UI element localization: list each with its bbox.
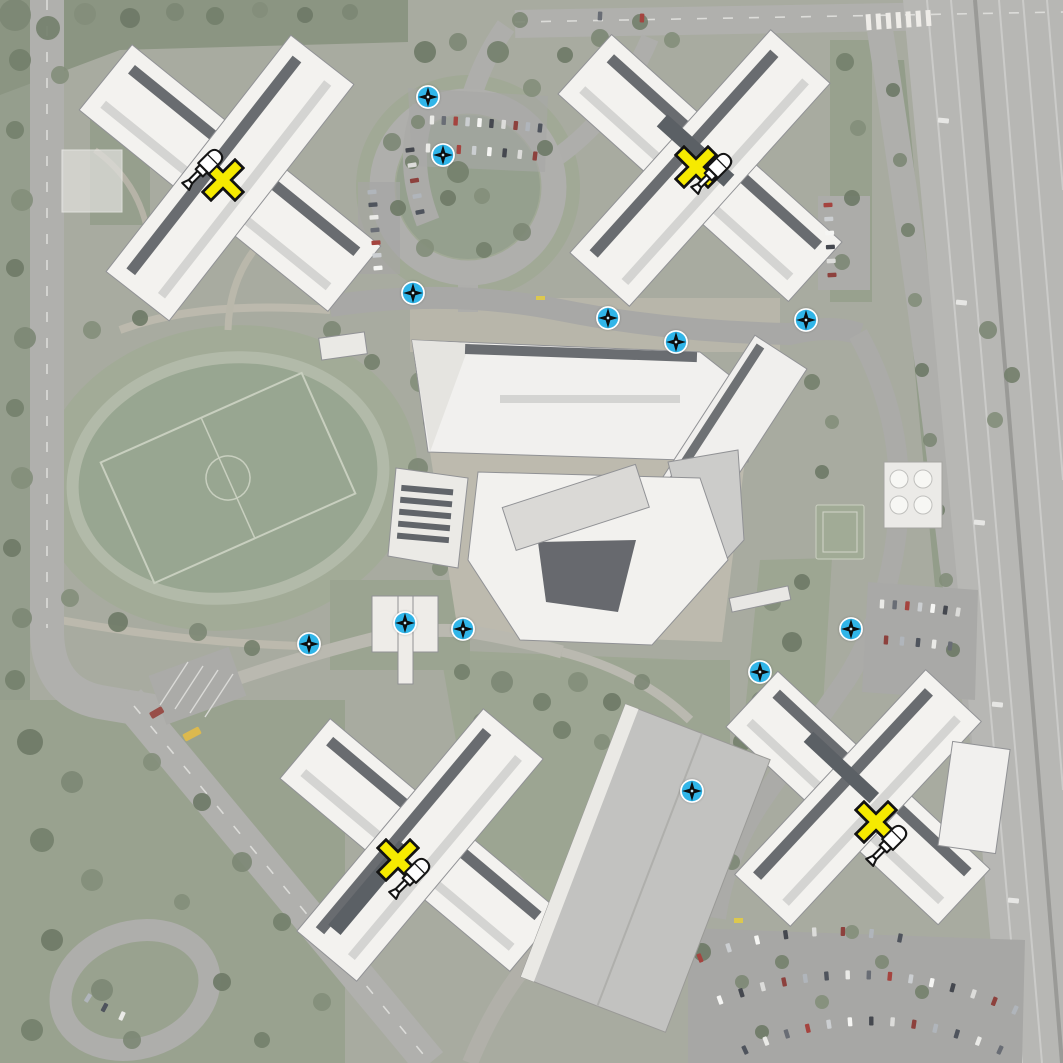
waypoint-marker[interactable] — [748, 660, 773, 685]
waypoint-marker[interactable] — [431, 143, 456, 168]
waypoint-marker[interactable] — [393, 611, 418, 636]
screwdriver-icon — [173, 142, 231, 200]
repair-marker[interactable] — [350, 812, 446, 908]
screwdriver-icon — [380, 851, 438, 909]
compass-star-icon — [748, 660, 773, 685]
waypoint-marker[interactable] — [794, 308, 819, 333]
repair-marker[interactable] — [828, 774, 924, 870]
repair-marker[interactable] — [175, 132, 271, 228]
waypoint-marker[interactable] — [596, 306, 621, 331]
compass-star-icon — [297, 632, 322, 657]
repair-marker[interactable] — [648, 119, 744, 215]
compass-star-icon — [794, 308, 819, 333]
waypoint-marker[interactable] — [416, 85, 441, 110]
screwdriver-icon — [857, 818, 915, 876]
screwdriver-icon — [682, 146, 740, 204]
compass-star-icon — [401, 281, 426, 306]
compass-star-icon — [393, 611, 418, 636]
marker-layer — [0, 0, 1063, 1063]
waypoint-marker[interactable] — [664, 330, 689, 355]
waypoint-marker[interactable] — [451, 617, 476, 642]
compass-star-icon — [680, 779, 705, 804]
campus-satellite-view — [0, 0, 1063, 1063]
waypoint-marker[interactable] — [297, 632, 322, 657]
compass-star-icon — [839, 617, 864, 642]
compass-star-icon — [416, 85, 441, 110]
compass-star-icon — [664, 330, 689, 355]
compass-star-icon — [451, 617, 476, 642]
waypoint-marker[interactable] — [401, 281, 426, 306]
waypoint-marker[interactable] — [680, 779, 705, 804]
waypoint-marker[interactable] — [839, 617, 864, 642]
compass-star-icon — [596, 306, 621, 331]
compass-star-icon — [431, 143, 456, 168]
